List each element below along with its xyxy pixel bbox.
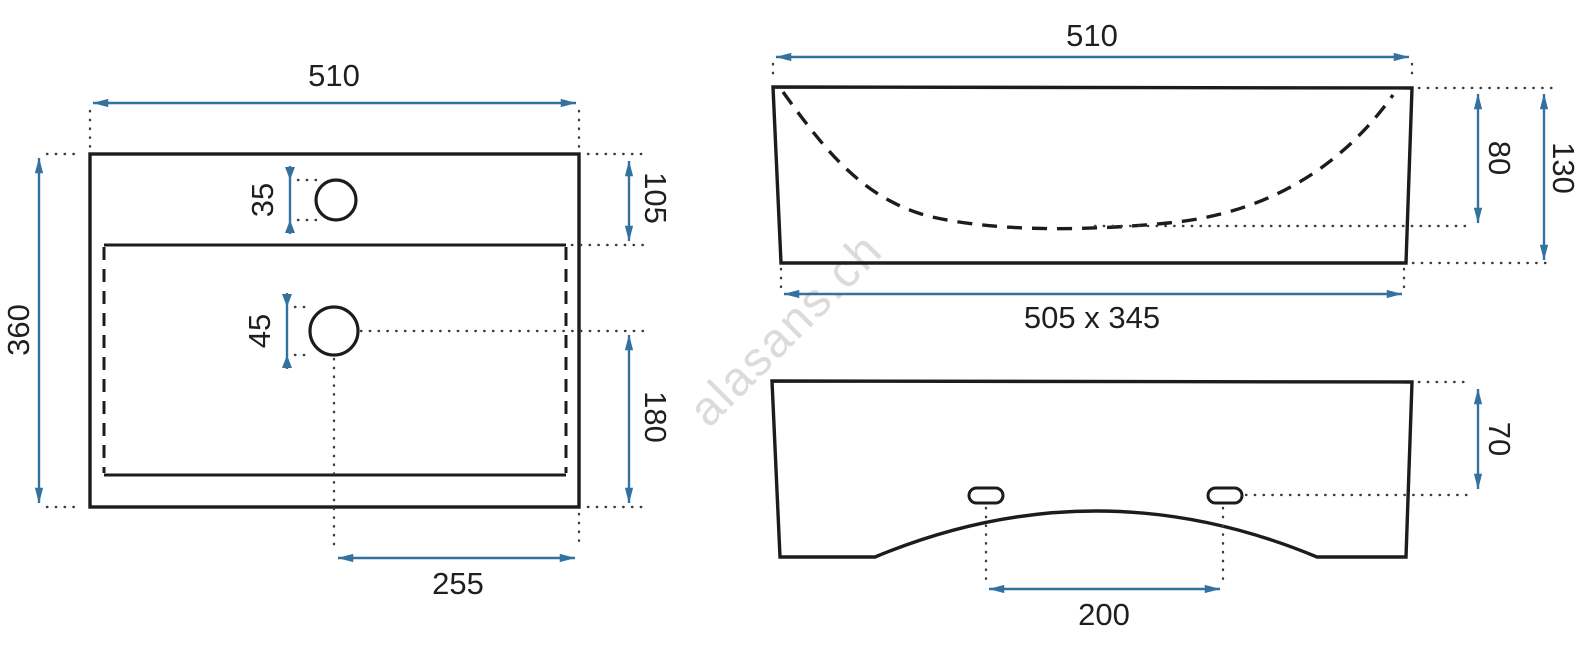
dim-label-basin-505x345: 505 x 345: [1024, 300, 1160, 335]
watermark: alasans.ch: [679, 223, 893, 437]
dim-label-drain-45: 45: [242, 314, 277, 348]
dim-label-basin-depth-80: 80: [1482, 141, 1517, 175]
drawing-svg: alasans.ch: [0, 0, 1579, 645]
technical-drawing-washbasin: alasans.ch: [0, 0, 1579, 645]
dim-label-height-130: 130: [1546, 142, 1579, 194]
front-view-dimensions: [776, 57, 1544, 294]
top-view-outline: [90, 154, 579, 507]
dim-label-tap-35: 35: [245, 183, 280, 217]
basin-profile-hidden-curve: [783, 92, 1393, 229]
dim-label-slot-offset-70: 70: [1482, 422, 1517, 456]
front-view-extension-lines: [773, 64, 1552, 288]
tap-hole-circle: [316, 180, 356, 220]
top-view: [90, 154, 579, 507]
top-view-dimensions: [39, 103, 629, 558]
mount-slot-right: [1208, 488, 1242, 503]
drain-hole-circle: [310, 307, 358, 355]
top-view-inward-arrowheads: [282, 167, 295, 368]
dim-label-drain-180: 180: [638, 391, 673, 443]
dim-label-depth-360: 360: [1, 304, 36, 356]
dim-label-rim-105: 105: [638, 172, 673, 224]
top-view-extension-lines: [47, 111, 644, 549]
back-view-outline: [772, 381, 1412, 557]
dim-label-front-width-510: 510: [1066, 18, 1118, 53]
back-view-extension-lines: [986, 382, 1468, 583]
dim-label-width-510: 510: [308, 58, 360, 93]
dim-label-drain-255: 255: [432, 566, 484, 601]
back-view: [772, 381, 1412, 557]
mount-slot-left: [969, 488, 1003, 503]
dim-label-slot-spacing-200: 200: [1078, 597, 1130, 632]
